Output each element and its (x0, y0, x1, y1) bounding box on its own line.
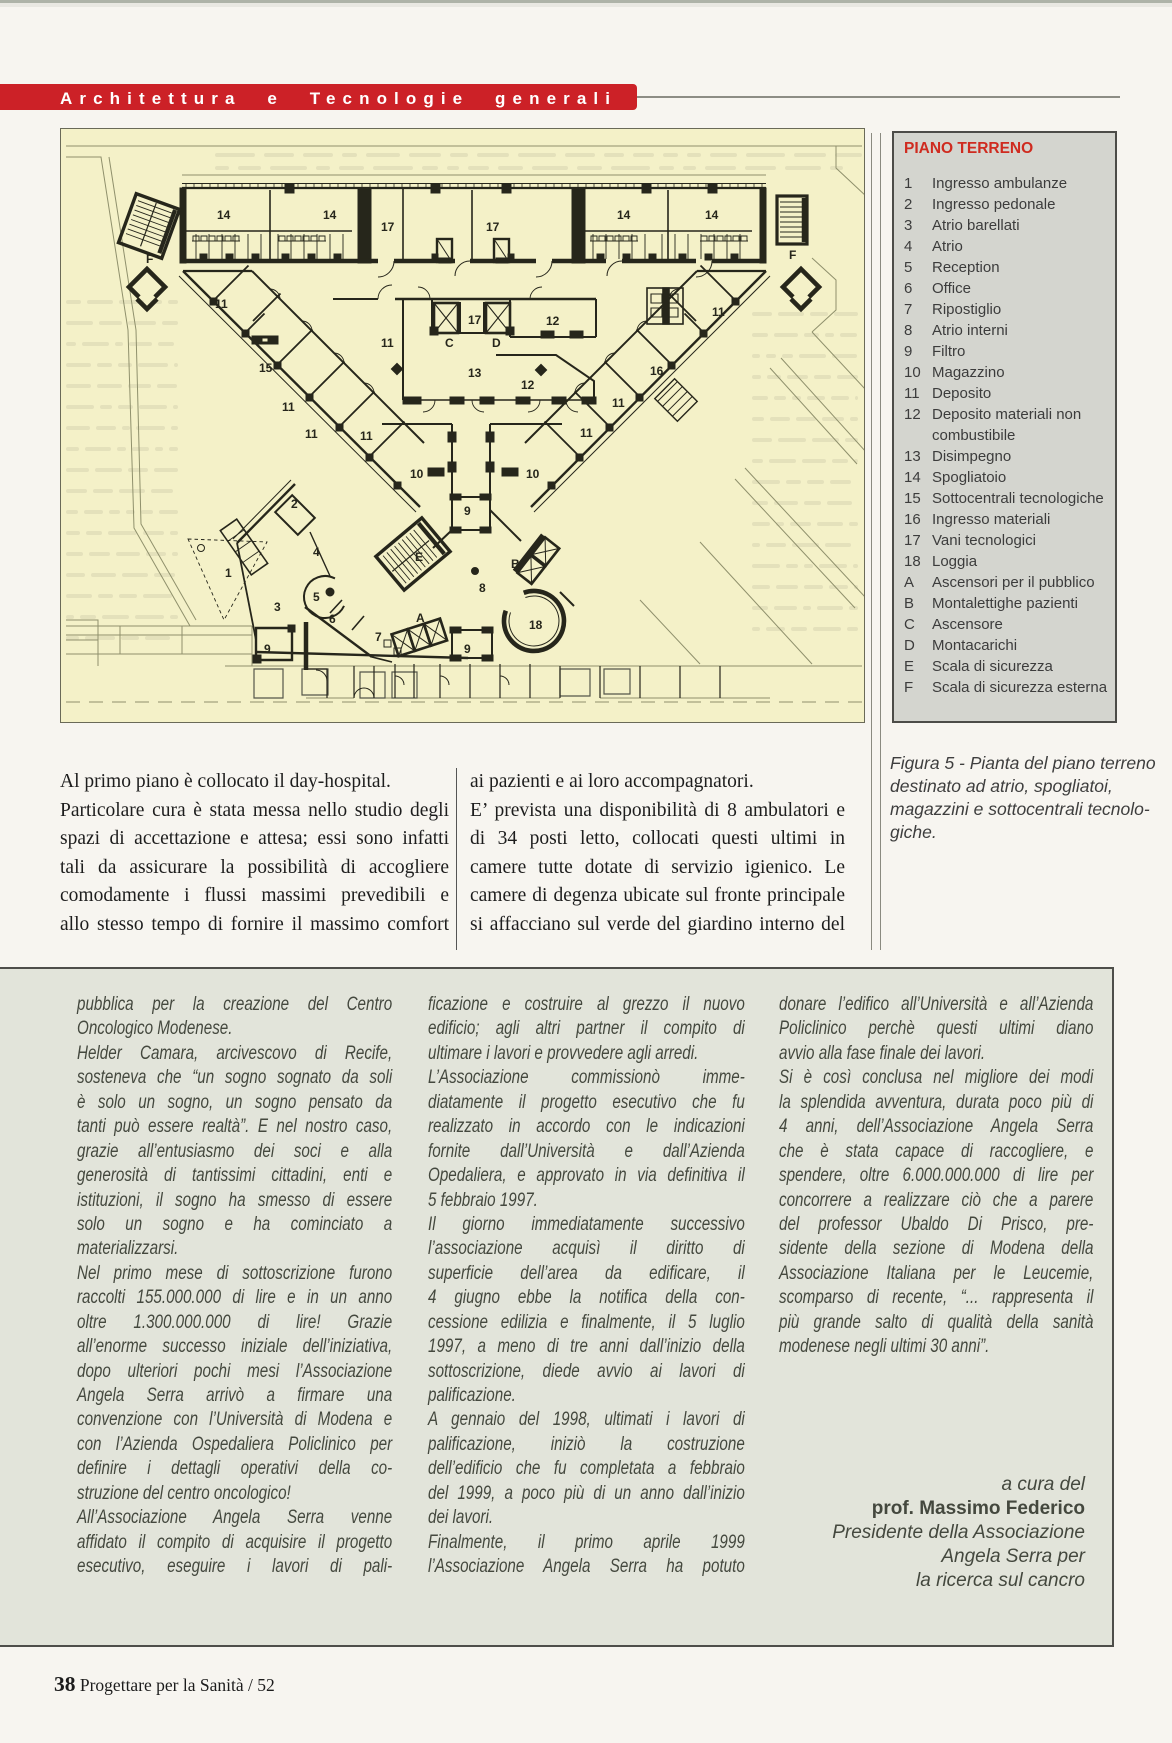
svg-text:17: 17 (486, 220, 500, 234)
svg-text:11: 11 (282, 400, 295, 414)
svg-text:11: 11 (612, 396, 625, 410)
svg-text:4: 4 (313, 545, 320, 559)
svg-text:11: 11 (580, 426, 593, 440)
svg-text:9: 9 (264, 642, 271, 656)
svg-text:E: E (415, 550, 423, 564)
svg-text:A: A (416, 611, 425, 625)
svg-text:C: C (445, 336, 454, 350)
svg-text:6: 6 (329, 612, 336, 626)
svg-text:F: F (789, 248, 796, 262)
svg-text:F: F (146, 252, 153, 266)
svg-text:11: 11 (215, 297, 228, 311)
svg-text:2: 2 (291, 497, 298, 511)
svg-text:9: 9 (464, 504, 471, 518)
svg-text:18: 18 (529, 618, 543, 632)
svg-text:16: 16 (650, 364, 664, 378)
svg-text:13: 13 (468, 366, 482, 380)
svg-text:10: 10 (410, 467, 424, 481)
svg-text:11: 11 (712, 305, 725, 319)
svg-text:3: 3 (274, 600, 281, 614)
svg-text:10: 10 (526, 467, 540, 481)
svg-text:1: 1 (225, 566, 232, 580)
svg-text:B: B (511, 557, 520, 571)
svg-text:14: 14 (705, 208, 719, 222)
svg-text:8: 8 (479, 581, 486, 595)
svg-text:14: 14 (217, 208, 231, 222)
svg-text:17: 17 (381, 220, 395, 234)
svg-text:9: 9 (464, 642, 471, 656)
svg-text:5: 5 (313, 590, 320, 604)
svg-text:12: 12 (521, 378, 535, 392)
svg-text:11: 11 (305, 427, 318, 441)
svg-text:14: 14 (323, 208, 337, 222)
svg-text:14: 14 (617, 208, 631, 222)
svg-text:17: 17 (468, 313, 482, 327)
svg-text:11: 11 (381, 336, 394, 350)
svg-text:11: 11 (360, 429, 373, 443)
svg-text:D: D (492, 336, 501, 350)
svg-text:12: 12 (546, 314, 560, 328)
svg-text:15: 15 (259, 361, 273, 375)
svg-text:7: 7 (375, 630, 382, 644)
